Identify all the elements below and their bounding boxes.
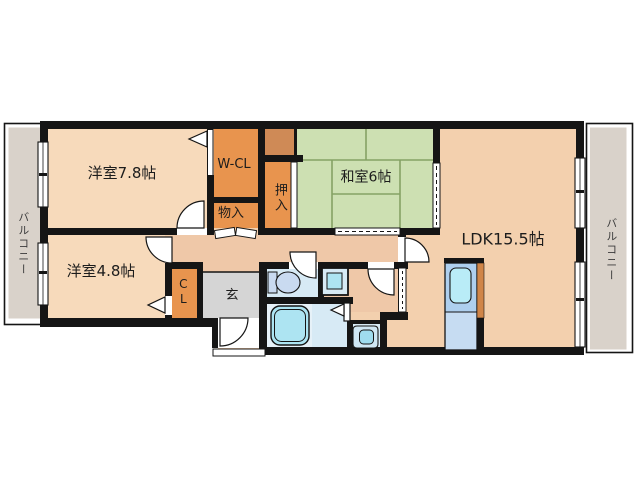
window-left-bedroom2 — [38, 243, 48, 305]
kitchen-sink-icon — [450, 268, 471, 303]
closet-label: CL — [177, 277, 190, 307]
tatami-room-label: 和室6帖 — [341, 171, 392, 186]
entrance-porch-step — [213, 349, 265, 356]
window-left-bedroom1 — [38, 142, 48, 207]
balcony-right-label: バルコニー — [605, 218, 617, 283]
hallway-floor-genkan-approach — [203, 262, 259, 272]
bedroom2-label: 洋室4.8帖 — [67, 264, 136, 280]
floor-plan: 洋室7.8帖 洋室4.8帖 和室6帖 LDK15.5帖 W-CL 物入 押入 C… — [0, 0, 638, 480]
walk-in-closet-door — [208, 130, 214, 176]
washroom-door-opening — [368, 262, 394, 269]
ldk-label: LDK15.5帖 — [461, 232, 544, 249]
washing-machine-pan-icon — [322, 268, 348, 295]
upper-shelf-fill — [265, 129, 294, 155]
window-right-upper — [575, 158, 585, 228]
toilet-icon — [268, 272, 300, 293]
bathroom-door — [344, 303, 350, 321]
hallway-floor — [172, 235, 398, 262]
genkan-label: 玄 — [225, 289, 238, 303]
tatami-sliding-door — [335, 228, 400, 235]
bedroom1-door-opening — [177, 228, 207, 235]
balcony-left-label: バルコニー — [17, 212, 29, 277]
washroom-ldk-sliding-door — [399, 268, 407, 312]
washbasin-icon — [353, 326, 378, 348]
storage-label: 物入 — [218, 207, 244, 221]
bedroom1-label: 洋室7.8帖 — [88, 166, 157, 182]
window-right-lower — [575, 262, 585, 347]
bathtub-icon — [271, 306, 309, 345]
tatami-ldk-sliding-door — [433, 163, 440, 228]
walk-in-closet-label: W-CL — [217, 158, 250, 172]
closet-door-opening — [165, 296, 172, 315]
oshiire-label: 押入 — [272, 183, 286, 213]
oshiire-fusuma-door — [291, 162, 297, 228]
